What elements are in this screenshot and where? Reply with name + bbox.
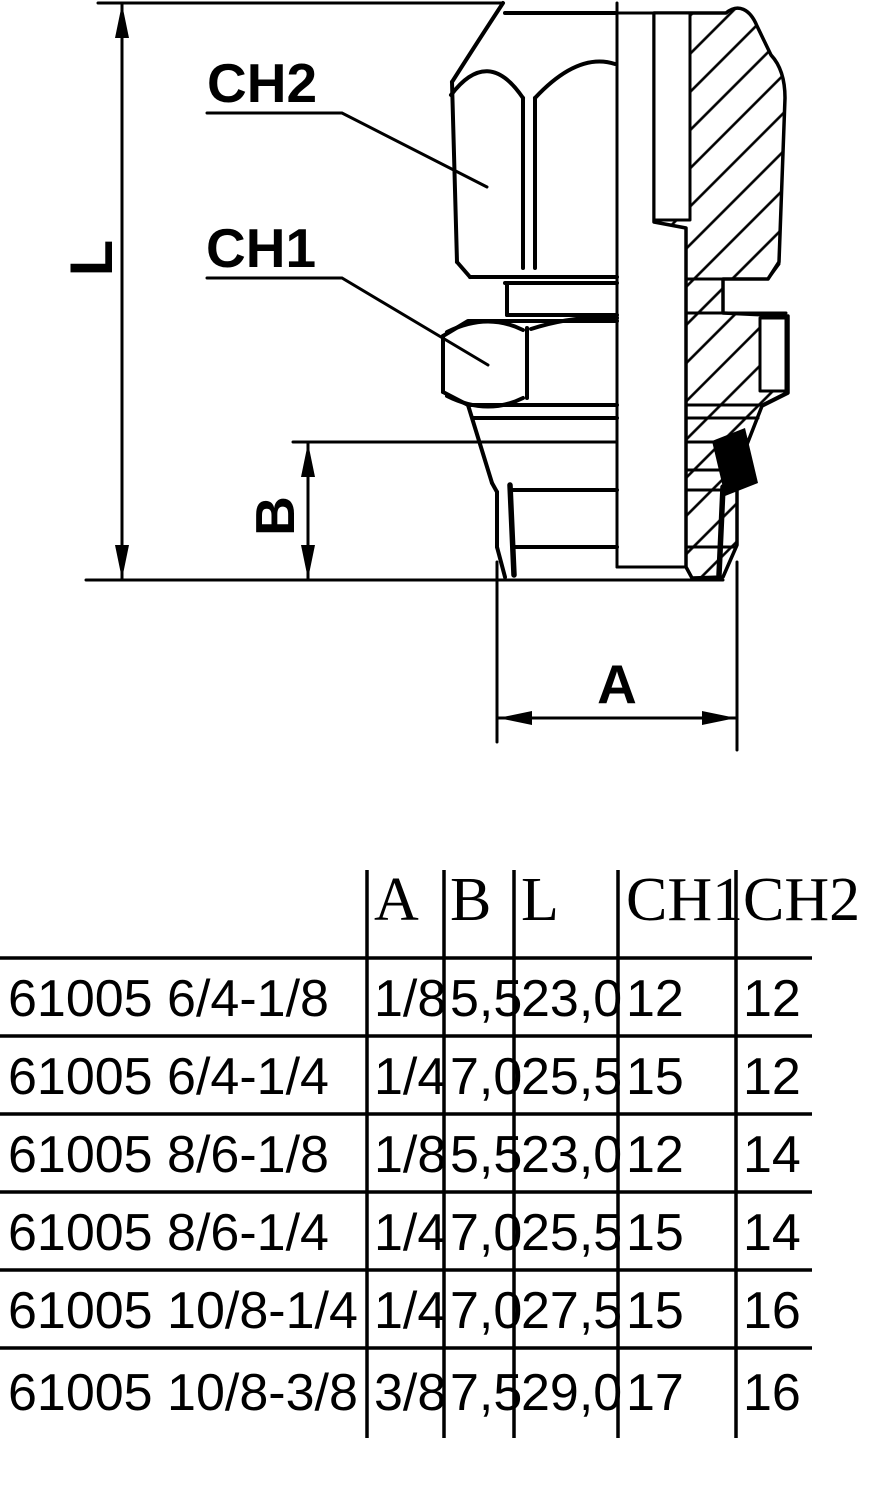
table-row: 61005 6/4-1/4 1/4 7,0 25,5 15 12	[8, 1048, 801, 1106]
dimensions: CH2 CH1 L B A	[58, 3, 737, 750]
arrow-b-down	[301, 545, 315, 579]
outline-left-half	[443, 3, 617, 577]
cell-ch1: 17	[626, 1364, 684, 1422]
hex-outer-ring-white	[760, 318, 786, 391]
cell-part: 61005 10/8-1/4	[8, 1282, 358, 1340]
label-ch2: CH2	[207, 52, 317, 114]
cell-ch2: 12	[743, 970, 801, 1028]
cell-a: 1/8	[374, 970, 446, 1028]
cell-a: 1/4	[374, 1204, 446, 1262]
col-header-b: B	[450, 866, 491, 934]
cell-ch2: 14	[743, 1204, 801, 1262]
cell-b: 7,0	[450, 1048, 522, 1106]
section-right-half	[617, 8, 788, 578]
cell-b: 7,0	[450, 1282, 522, 1340]
table-row: 61005 8/6-1/4 1/4 7,0 25,5 15 14	[8, 1204, 801, 1262]
catalog-page: CH2 CH1 L B A A B L CH1 CH2	[0, 0, 883, 1500]
neck	[505, 283, 617, 315]
cell-b: 7,0	[450, 1204, 522, 1262]
cell-l: 23,0	[521, 970, 622, 1028]
table-row: 61005 10/8-3/8 3/8 7,5 29,0 17 16	[8, 1364, 801, 1422]
cell-l: 27,5	[521, 1282, 622, 1340]
cell-l: 23,0	[521, 1126, 622, 1184]
cell-part: 61005 10/8-3/8	[8, 1364, 358, 1422]
col-header-ch1: CH1	[626, 866, 743, 934]
label-length: L	[58, 240, 125, 277]
cell-b: 5,5	[450, 970, 522, 1028]
cell-part: 61005 8/6-1/4	[8, 1204, 329, 1262]
leader-ch1	[207, 278, 488, 365]
cell-part: 61005 8/6-1/8	[8, 1126, 329, 1184]
cell-b: 7,5	[450, 1364, 522, 1422]
cell-ch1: 15	[626, 1048, 684, 1106]
cell-ch2: 12	[743, 1048, 801, 1106]
cell-l: 25,5	[521, 1204, 622, 1262]
table-row: 61005 8/6-1/8 1/8 5,5 23,0 12 14	[8, 1126, 801, 1184]
label-depth: B	[244, 496, 306, 536]
thread-crest-left	[510, 485, 514, 575]
table-body: 61005 6/4-1/8 1/8 5,5 23,0 12 12 61005 6…	[8, 970, 801, 1422]
col-header-ch2: CH2	[743, 866, 860, 934]
arrow-l-up	[115, 4, 129, 38]
arrow-l-down	[115, 545, 129, 579]
label-thread: A	[597, 653, 637, 715]
col-header-a: A	[374, 866, 419, 934]
cell-part: 61005 6/4-1/4	[8, 1048, 329, 1106]
cell-ch2: 16	[743, 1364, 801, 1422]
col-header-l: L	[521, 866, 559, 934]
cell-ch1: 15	[626, 1204, 684, 1262]
cell-ch1: 12	[626, 1126, 684, 1184]
arrow-b-up	[301, 443, 315, 477]
cell-ch1: 12	[626, 970, 684, 1028]
cell-a: 1/4	[374, 1282, 446, 1340]
cell-ch2: 14	[743, 1126, 801, 1184]
cell-ch1: 15	[626, 1282, 684, 1340]
cap-ch2-nut	[451, 3, 617, 277]
cell-ch2: 16	[743, 1282, 801, 1340]
hex-ch1-nut	[443, 317, 617, 406]
cell-a: 1/8	[374, 1126, 446, 1184]
cell-a: 1/4	[374, 1048, 446, 1106]
taper-and-thread	[468, 405, 617, 577]
cell-b: 5,5	[450, 1126, 522, 1184]
arrow-a-right	[702, 711, 736, 725]
leader-ch2	[207, 113, 487, 187]
fitting-drawing-and-table: CH2 CH1 L B A A B L CH1 CH2	[0, 0, 883, 1500]
dimension-lines	[86, 3, 737, 750]
table-row: 61005 6/4-1/8 1/8 5,5 23,0 12 12	[8, 970, 801, 1028]
label-ch1: CH1	[206, 217, 316, 279]
cell-a: 3/8	[374, 1364, 446, 1422]
collet-sleeve-white	[654, 13, 690, 220]
cell-part: 61005 6/4-1/8	[8, 970, 329, 1028]
spec-table: A B L CH1 CH2 61005 6/4-1/8 1/8 5,5 23,0…	[0, 866, 860, 1438]
table-row: 61005 10/8-1/4 1/4 7,0 27,5 15 16	[8, 1282, 801, 1340]
cell-l: 25,5	[521, 1048, 622, 1106]
cell-l: 29,0	[521, 1364, 622, 1422]
arrow-a-left	[498, 711, 532, 725]
